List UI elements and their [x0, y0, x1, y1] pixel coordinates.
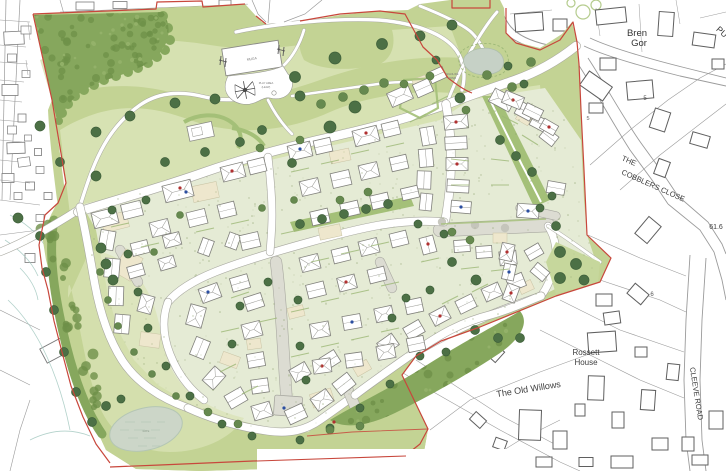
svg-text:(LEAP): (LEAP)	[262, 85, 271, 89]
svg-text:5: 5	[586, 116, 589, 122]
svg-text:House: House	[574, 358, 598, 367]
svg-text:Gor: Gor	[631, 38, 647, 49]
svg-text:61.6: 61.6	[709, 224, 723, 231]
svg-text:PLAY AREA: PLAY AREA	[259, 81, 274, 85]
svg-text:POND: POND	[448, 76, 456, 80]
svg-text:Rossett: Rossett	[572, 348, 600, 357]
svg-text:RATE: RATE	[143, 429, 150, 433]
